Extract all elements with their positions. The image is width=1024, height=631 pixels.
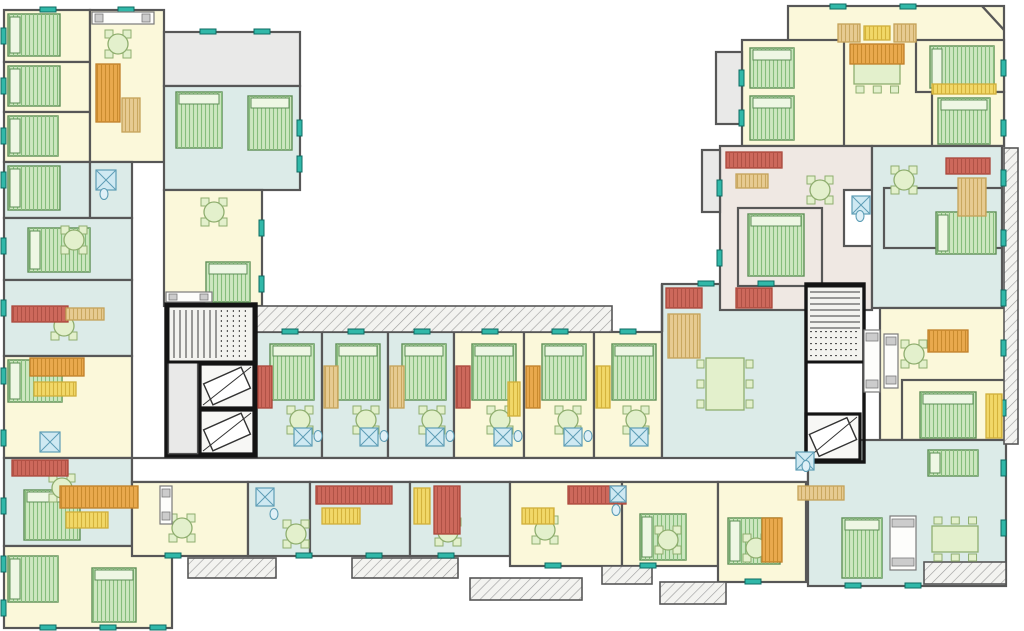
wardrobe-texture	[12, 306, 68, 322]
kitchen-counter	[92, 12, 154, 24]
balcony	[352, 558, 458, 578]
shower	[564, 428, 582, 446]
bed	[928, 450, 978, 476]
bed-pillow	[30, 231, 40, 269]
window-marker	[545, 563, 561, 568]
balcony	[660, 582, 726, 604]
chair	[746, 360, 753, 368]
wardrobe	[66, 512, 108, 528]
wardrobe	[34, 382, 76, 396]
wardrobe	[324, 366, 338, 408]
wardrobe	[60, 486, 138, 508]
toilet	[802, 461, 810, 472]
bed	[748, 214, 804, 276]
staircase	[806, 286, 864, 362]
window-marker	[200, 29, 216, 34]
wardrobe	[526, 366, 540, 408]
wardrobe	[434, 486, 460, 534]
wardrobe	[390, 366, 404, 408]
shower	[294, 428, 312, 446]
sink	[892, 519, 914, 527]
bed-pillow	[475, 346, 513, 356]
shower	[494, 428, 512, 446]
window-marker	[1, 300, 6, 316]
wardrobe	[958, 178, 986, 216]
wardrobe-texture	[894, 24, 916, 42]
wardrobe-texture	[666, 288, 702, 308]
wardrobe-texture	[456, 366, 470, 408]
chair	[934, 517, 942, 524]
courtyard-balcony-strip	[256, 306, 612, 332]
hob	[892, 558, 914, 566]
bed-pillow	[642, 517, 652, 557]
window-marker	[1001, 230, 1006, 246]
bed-pillow	[930, 453, 940, 473]
chair	[746, 400, 753, 408]
bed	[920, 392, 976, 438]
balcony	[470, 578, 582, 600]
chair	[746, 380, 753, 388]
window-marker	[297, 156, 302, 172]
window-marker	[1, 128, 6, 144]
wardrobe-texture	[324, 366, 338, 408]
wardrobe-texture	[726, 152, 782, 168]
bed-pillow	[10, 559, 20, 599]
bed-pillow	[251, 98, 289, 108]
bed-pillow	[845, 520, 879, 530]
chair	[951, 554, 959, 561]
bed-pillow	[730, 521, 740, 561]
window-marker	[100, 625, 116, 630]
window-marker	[414, 329, 430, 334]
window-marker	[259, 276, 264, 292]
window-marker	[1001, 120, 1006, 136]
wardrobe-texture	[122, 98, 140, 132]
staircase	[806, 286, 864, 362]
bed-pillow	[10, 69, 20, 103]
bed-pillow	[923, 394, 973, 404]
wardrobe	[838, 24, 860, 42]
chair	[697, 380, 704, 388]
wardrobe-texture	[596, 366, 610, 408]
window-marker	[1, 78, 6, 94]
sink	[886, 337, 896, 345]
wardrobe	[122, 98, 140, 132]
table-top	[108, 34, 128, 54]
window-marker	[745, 579, 761, 584]
wardrobe-texture	[258, 366, 272, 408]
wardrobe-texture	[522, 508, 554, 524]
bed	[612, 344, 656, 400]
wardrobe-texture	[414, 488, 430, 524]
window-marker	[717, 250, 722, 266]
table-top	[558, 410, 578, 430]
window-marker	[1001, 170, 1006, 186]
wardrobe-texture	[986, 394, 1002, 438]
table-top	[706, 358, 744, 410]
wardrobe-texture	[30, 358, 84, 376]
toilet	[612, 505, 620, 516]
wardrobe	[666, 288, 702, 308]
window-marker	[259, 220, 264, 236]
bed-pillow	[209, 264, 247, 274]
hob	[200, 294, 208, 300]
toilet	[270, 509, 278, 520]
kitchen-counter	[166, 292, 212, 302]
wardrobe	[522, 508, 554, 524]
wardrobe-texture	[946, 158, 990, 174]
hob	[886, 376, 896, 384]
chair	[891, 86, 899, 93]
wardrobe	[456, 366, 470, 408]
wardrobe-texture	[60, 486, 138, 508]
bed	[750, 96, 794, 140]
sink	[162, 489, 170, 497]
dining-table	[891, 166, 917, 194]
window-marker	[296, 553, 312, 558]
balcony	[602, 566, 652, 584]
bed	[8, 66, 60, 106]
dining-table	[655, 526, 681, 554]
window-marker	[282, 329, 298, 334]
bed	[8, 556, 58, 602]
window-marker	[1, 556, 6, 572]
bed-pillow	[405, 346, 443, 356]
window-marker	[905, 583, 921, 588]
wardrobe-texture	[864, 26, 890, 40]
hob	[866, 380, 878, 388]
shower	[96, 170, 116, 190]
window-marker	[1, 238, 6, 254]
wardrobe	[30, 358, 84, 376]
dining-table	[807, 176, 833, 204]
bed-pillow	[273, 346, 311, 356]
bed	[842, 518, 882, 578]
window-marker	[366, 553, 382, 558]
window-marker	[150, 625, 166, 630]
wardrobe-texture	[316, 486, 392, 504]
bed	[750, 48, 794, 88]
wardrobe	[864, 26, 890, 40]
table-top	[356, 410, 376, 430]
dining-table	[169, 514, 195, 542]
table-top	[422, 410, 442, 430]
room-terrace	[164, 32, 300, 86]
bed	[542, 344, 586, 400]
window-marker	[40, 7, 56, 12]
wardrobe-texture	[66, 512, 108, 528]
bed-pillow	[938, 215, 948, 251]
wardrobe	[66, 308, 104, 320]
window-marker	[1, 368, 6, 384]
bed	[8, 116, 58, 156]
wardrobe-texture	[434, 486, 460, 534]
window-marker	[1, 172, 6, 188]
table-top	[626, 410, 646, 430]
window-marker	[1, 600, 6, 616]
bed	[336, 344, 380, 400]
window-marker	[165, 553, 181, 558]
window-marker	[1, 498, 6, 514]
wardrobe	[316, 486, 392, 504]
dining-table	[201, 198, 227, 226]
bed	[8, 14, 60, 56]
bed	[270, 344, 314, 400]
wardrobe	[850, 44, 904, 64]
balcony	[188, 558, 276, 578]
toilet	[380, 431, 388, 442]
window-marker	[1, 430, 6, 446]
dining-table	[283, 520, 309, 548]
wardrobe	[508, 382, 520, 416]
wardrobe-texture	[390, 366, 404, 408]
floor-plan	[0, 0, 1024, 631]
wardrobe-texture	[668, 314, 700, 358]
wardrobe	[726, 152, 782, 168]
wardrobe-texture	[736, 174, 768, 188]
wardrobe	[932, 84, 996, 94]
bed-pillow	[95, 570, 133, 580]
dining-table-large	[932, 517, 978, 561]
shower	[256, 488, 274, 506]
chair	[969, 517, 977, 524]
bed	[176, 92, 222, 148]
wardrobe	[12, 460, 68, 476]
kitchen-counter	[160, 486, 172, 524]
wardrobe	[258, 366, 272, 408]
window-marker	[254, 29, 270, 34]
shower	[40, 432, 60, 452]
wardrobe	[946, 158, 990, 174]
wardrobe-texture	[34, 382, 76, 396]
window-marker	[1001, 460, 1006, 476]
kitchen-counter	[864, 330, 880, 392]
chair	[856, 86, 864, 93]
table-top	[894, 170, 914, 190]
shower	[426, 428, 444, 446]
bed	[248, 96, 292, 150]
chair	[969, 554, 977, 561]
bed	[8, 166, 60, 210]
bed-pillow	[10, 17, 20, 53]
bed-pillow	[179, 94, 219, 104]
kitchen-counter	[890, 516, 916, 570]
elevator	[200, 410, 254, 454]
bed	[206, 262, 250, 302]
window-marker	[758, 281, 774, 286]
table-top	[204, 202, 224, 222]
wardrobe	[762, 518, 782, 562]
dining-table-large	[697, 358, 753, 410]
bed	[938, 98, 990, 144]
window-marker	[739, 110, 744, 126]
wardrobe	[668, 314, 700, 358]
table-top	[490, 410, 510, 430]
wardrobe-texture	[66, 308, 104, 320]
table-top	[64, 230, 84, 250]
bed-pillow	[545, 346, 583, 356]
hob	[142, 14, 150, 22]
window-marker	[620, 329, 636, 334]
bed-pillow	[753, 50, 791, 60]
chair	[697, 360, 704, 368]
bed-pillow	[751, 216, 801, 226]
table-top	[658, 530, 678, 550]
window-marker	[717, 180, 722, 196]
window-marker	[845, 583, 861, 588]
bed-pillow	[339, 346, 377, 356]
chair	[934, 554, 942, 561]
toilet	[856, 211, 864, 222]
window-marker	[552, 329, 568, 334]
toilet	[514, 431, 522, 442]
window-marker	[1, 28, 6, 44]
bed	[402, 344, 446, 400]
dining-table	[61, 226, 87, 254]
wardrobe	[894, 24, 916, 42]
wardrobe-texture	[508, 382, 520, 416]
wardrobe	[414, 488, 430, 524]
chair	[873, 86, 881, 93]
room-balcony	[716, 52, 742, 124]
window-marker	[640, 563, 656, 568]
bed-pillow	[932, 49, 942, 85]
wardrobe	[986, 394, 1002, 438]
wardrobe-texture	[928, 330, 968, 352]
wardrobe-texture	[12, 460, 68, 476]
window-marker	[438, 553, 454, 558]
window-marker	[348, 329, 364, 334]
wardrobe-texture	[96, 64, 120, 122]
toilet	[584, 431, 592, 442]
table-top	[904, 344, 924, 364]
dining-table	[901, 340, 927, 368]
chair	[697, 400, 704, 408]
window-marker	[1001, 520, 1006, 536]
table-top	[172, 518, 192, 538]
elevator	[200, 364, 254, 408]
dining-table	[105, 30, 131, 58]
wardrobe-texture	[762, 518, 782, 562]
wardrobe	[928, 330, 968, 352]
bed	[92, 568, 136, 622]
staircase	[168, 306, 254, 362]
staircase	[168, 306, 254, 362]
kitchen-counter	[884, 334, 898, 388]
wardrobe	[12, 306, 68, 322]
window-marker	[698, 281, 714, 286]
window-marker	[297, 120, 302, 136]
wardrobe	[736, 288, 772, 308]
window-marker	[482, 329, 498, 334]
window-marker	[900, 4, 916, 9]
window-marker	[1001, 340, 1006, 356]
toilet	[446, 431, 454, 442]
bed	[936, 212, 996, 254]
shower	[630, 428, 648, 446]
window-marker	[118, 7, 134, 12]
window-marker	[739, 70, 744, 86]
window-marker	[40, 625, 56, 630]
room-corridor	[132, 458, 808, 482]
wardrobe-texture	[850, 44, 904, 64]
balcony	[924, 562, 1006, 584]
bed-pillow	[615, 346, 653, 356]
bed-pillow	[10, 119, 20, 153]
wardrobe-texture	[958, 178, 986, 216]
bed-pillow	[941, 100, 987, 110]
chair	[951, 517, 959, 524]
wardrobe-texture	[838, 24, 860, 42]
wardrobe	[798, 486, 844, 500]
wardrobe-texture	[736, 288, 772, 308]
table-top	[290, 410, 310, 430]
window-marker	[1001, 290, 1006, 306]
sink	[95, 14, 103, 22]
window-marker	[830, 4, 846, 9]
wardrobe-texture	[526, 366, 540, 408]
bed-pillow	[753, 98, 791, 108]
table-top	[286, 524, 306, 544]
bed	[930, 46, 994, 88]
window-marker	[1001, 60, 1006, 76]
toilet	[314, 431, 322, 442]
wardrobe	[322, 508, 360, 524]
bed-pillow	[10, 363, 20, 399]
toilet	[100, 189, 108, 200]
sink	[866, 333, 878, 341]
wardrobe-texture	[322, 508, 360, 524]
wardrobe	[596, 366, 610, 408]
sink	[169, 294, 177, 300]
table-top	[810, 180, 830, 200]
wardrobe	[736, 174, 768, 188]
bed-pillow	[10, 169, 20, 207]
hob	[162, 512, 170, 520]
wardrobe-texture	[798, 486, 844, 500]
table-top	[932, 526, 978, 552]
wardrobe	[96, 64, 120, 122]
wardrobe-texture	[932, 84, 996, 94]
room-elevator-lobby	[168, 362, 198, 454]
shower	[610, 486, 626, 502]
shower	[360, 428, 378, 446]
floor-plan-stage	[0, 0, 1024, 631]
